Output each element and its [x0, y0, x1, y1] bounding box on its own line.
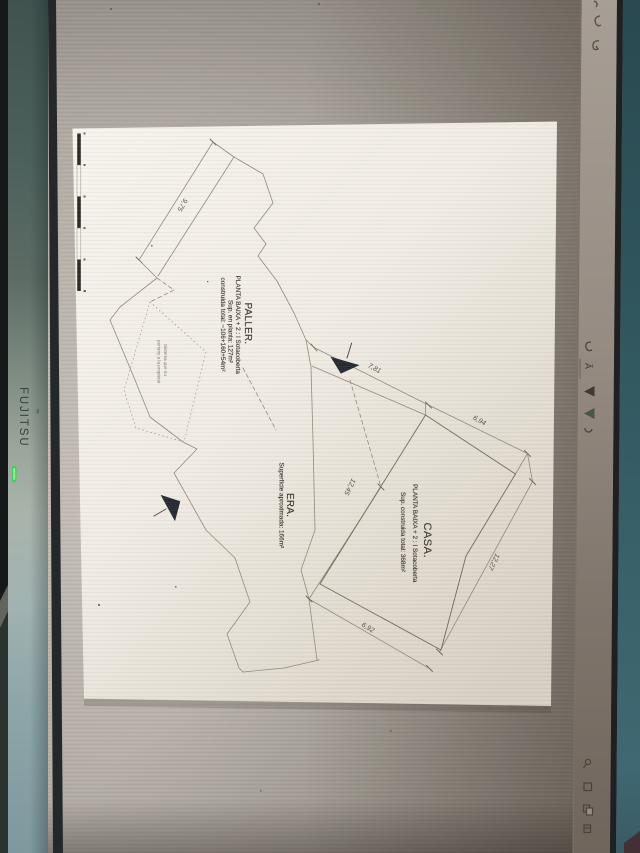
svg-text:∞: ∞ [34, 409, 41, 414]
svg-text:Ã: Ã [583, 363, 593, 369]
svg-text:FUJITSU: FUJITSU [17, 387, 29, 448]
